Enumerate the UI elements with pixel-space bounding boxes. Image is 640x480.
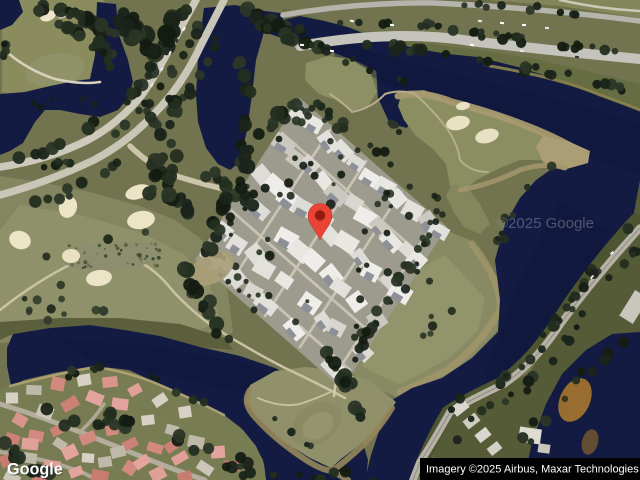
svg-text:Google: Google [7, 461, 63, 479]
svg-text:©2025 Google: ©2025 Google [497, 215, 594, 232]
svg-text:Imagery ©2025 Airbus, Maxar Te: Imagery ©2025 Airbus, Maxar Technologies [426, 464, 639, 476]
